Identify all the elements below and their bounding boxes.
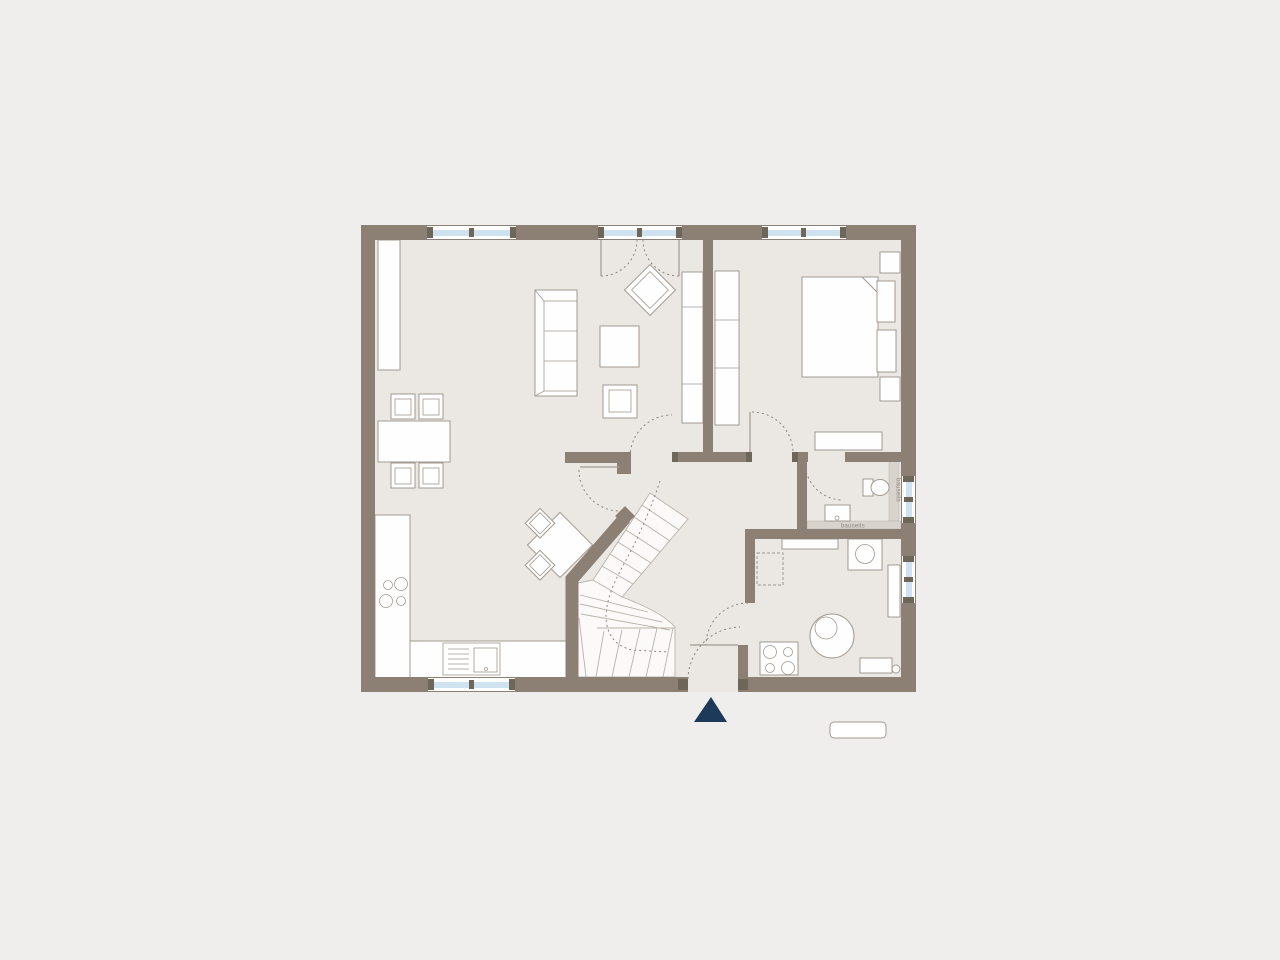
- dining-table: [378, 421, 450, 462]
- kitchen-counter-left: [375, 515, 410, 678]
- blank-label-plate: [830, 722, 886, 738]
- sofa: [535, 290, 577, 396]
- floor-plan: bauseits bauseits: [0, 0, 1280, 960]
- door-jamb-cap: [746, 452, 752, 462]
- armchair: [603, 385, 637, 418]
- shelf: [782, 539, 838, 549]
- wall-utility-top: [745, 529, 903, 539]
- wall-exterior-right: [901, 225, 916, 692]
- headboard: [877, 281, 895, 322]
- shaft-label-vertical: bauseits: [895, 478, 901, 502]
- dining-chair: [391, 394, 415, 419]
- entrance-opening: [688, 677, 738, 692]
- dining-chair: [391, 463, 415, 488]
- door-jamb-cap: [792, 452, 798, 462]
- door-jamb-cap: [672, 452, 678, 462]
- wall-door-jamb: [617, 452, 631, 474]
- wash-basin: [825, 505, 850, 521]
- wall-wc-left: [797, 462, 807, 529]
- wall-utility-left-lower: [738, 645, 748, 678]
- wall-hall-segment-b: [672, 452, 752, 462]
- window-wc-right: [902, 476, 915, 523]
- entrance-jamb-right: [738, 679, 748, 690]
- wall-utility-left-upper: [745, 539, 755, 603]
- tall-cabinet-right: [715, 271, 739, 425]
- headboard: [877, 330, 896, 372]
- kitchen-counter-bottom: [410, 641, 575, 678]
- nightstand: [880, 252, 900, 273]
- radiator: [888, 565, 900, 617]
- wall-living-bedroom: [703, 240, 713, 453]
- dining-chair: [419, 463, 443, 488]
- entrance-jamb-left: [678, 679, 688, 690]
- nightstand: [880, 377, 900, 401]
- shaft-label-horizontal: bauseits: [841, 524, 865, 530]
- window-bedroom: [762, 226, 846, 239]
- washing-machine: [848, 539, 882, 570]
- utility-hob: [760, 642, 798, 675]
- wall-wc-top: [845, 452, 901, 462]
- boiler: [810, 614, 854, 658]
- wall-exterior-left: [361, 225, 375, 692]
- wardrobe: [378, 240, 400, 370]
- dining-chair: [419, 394, 443, 419]
- coffee-table: [600, 326, 639, 367]
- dresser: [815, 432, 882, 450]
- window-kitchen: [428, 678, 515, 691]
- window-utility-right: [902, 556, 915, 603]
- window-living: [427, 226, 516, 239]
- tall-cabinet-left: [682, 272, 703, 423]
- toilet: [863, 479, 889, 496]
